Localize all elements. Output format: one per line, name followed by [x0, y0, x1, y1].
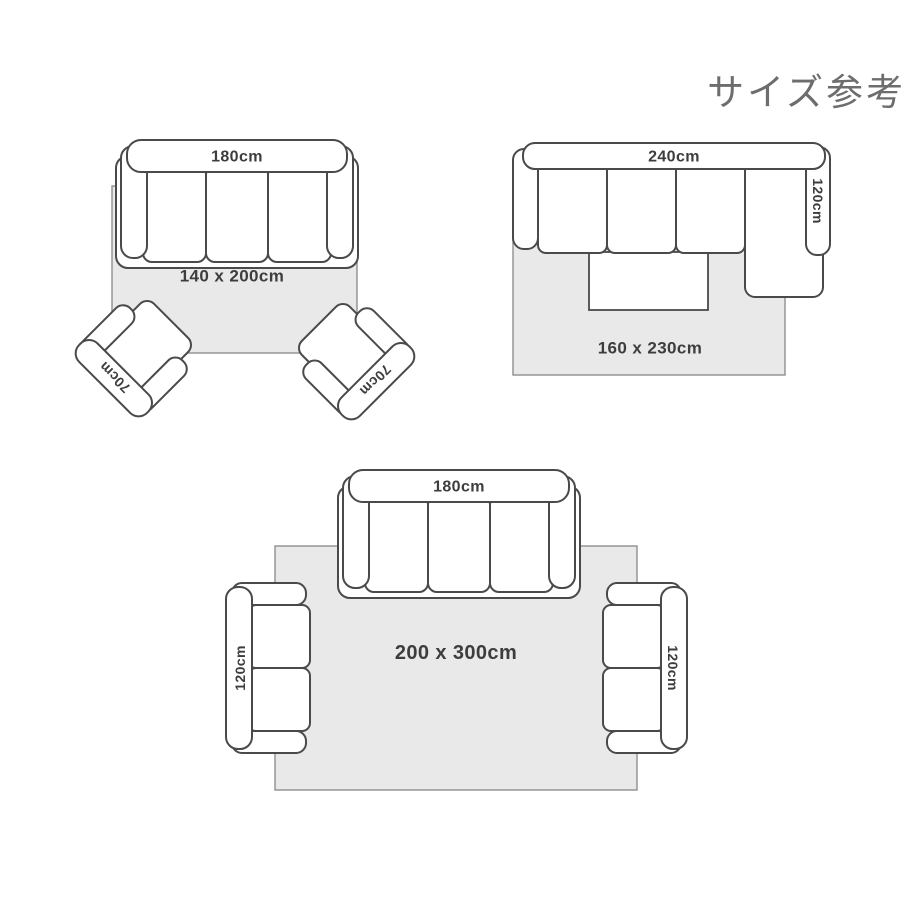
chaise-depth-label: 120cm [810, 178, 826, 224]
sofa-cushion [428, 496, 490, 592]
sofa-cushion [607, 159, 676, 253]
sofa-cushion [206, 166, 268, 262]
sofa-cushion [676, 159, 745, 253]
sofa-cushion [490, 496, 553, 592]
diagram-rug-140x200: 140 x 200cm 180cm 70cm 70cm [55, 130, 435, 430]
three-seat-sofa: 180cm [338, 470, 580, 598]
size-reference-page: サイズ参考 140 x 200cm 180cm 70cm 70cm [0, 0, 920, 920]
rug-size-label: 140 x 200cm [180, 267, 285, 286]
loveseat-left: 120cm [226, 583, 310, 753]
loveseat-cushion [248, 605, 310, 668]
loveseat-width-label: 120cm [232, 645, 248, 691]
sofa-width-label: 180cm [433, 479, 485, 496]
sofa-cushion [268, 166, 331, 262]
page-title: サイズ参考 [707, 62, 906, 116]
loveseat-cushion [603, 605, 665, 668]
three-seat-sofa: 180cm [116, 140, 358, 268]
sofa-cushion [143, 166, 206, 262]
sofa-cushion [538, 159, 607, 253]
diagram-rug-160x230: 160 x 230cm 240cm 120cm [495, 130, 845, 390]
sofa-cushion [365, 496, 428, 592]
rug-size-label: 160 x 230cm [598, 339, 703, 358]
diagram-rug-200x300: 200 x 300cm 180cm 120cm 120cm [215, 455, 715, 865]
loveseat-right: 120cm [603, 583, 687, 753]
sofa-width-label: 180cm [211, 149, 263, 166]
loveseat-cushion [248, 668, 310, 731]
rug-size-label: 200 x 300cm [395, 642, 517, 664]
loveseat-cushion [603, 668, 665, 731]
loveseat-width-label: 120cm [665, 645, 681, 691]
sofa-width-label: 240cm [648, 149, 700, 166]
coffee-table [589, 252, 708, 310]
